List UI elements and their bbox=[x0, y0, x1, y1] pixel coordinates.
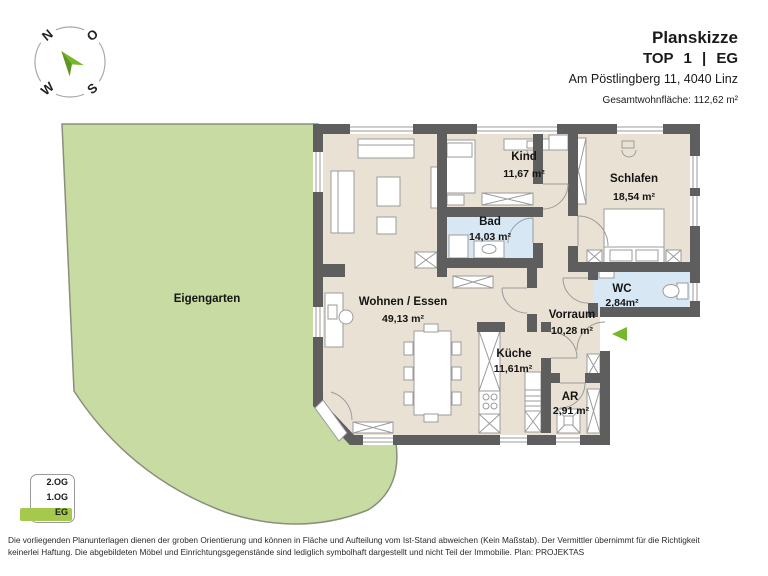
room-vorraum-name: Vorraum bbox=[549, 309, 595, 321]
room-kueche-area: 11,61m² bbox=[494, 363, 533, 375]
floor-option-1og[interactable]: 1.OG bbox=[31, 490, 74, 505]
floor-selector[interactable]: 2.OG 1.OG EG bbox=[30, 474, 75, 523]
room-wc-name: WC bbox=[612, 283, 631, 295]
room-wc-area: 2,84m² bbox=[605, 297, 639, 309]
floor-option-eg[interactable]: EG bbox=[31, 505, 74, 520]
disclaimer: Die vorliegenden Planunterlagen dienen d… bbox=[8, 534, 760, 558]
room-vorraum-area: 10,28 m² bbox=[551, 325, 594, 337]
floorplan-drawing: Eigengarten Kind 11,67 m² Schlafen 18,54… bbox=[0, 0, 768, 576]
room-kueche-name: Küche bbox=[496, 348, 531, 360]
floor-option-2og[interactable]: 2.OG bbox=[31, 475, 74, 490]
room-wohnen-name: Wohnen / Essen bbox=[359, 296, 448, 308]
room-schlafen-name: Schlafen bbox=[610, 173, 658, 185]
entrance-arrow-icon bbox=[612, 327, 627, 341]
room-bad-area: 14,03 m² bbox=[469, 231, 512, 243]
room-bad-name: Bad bbox=[479, 216, 501, 228]
room-wohnen-area: 49,13 m² bbox=[382, 313, 425, 325]
garden-label: Eigengarten bbox=[174, 293, 240, 305]
room-ar-area: 2,91 m² bbox=[553, 405, 590, 417]
room-ar-name: AR bbox=[562, 391, 579, 403]
room-kind-name: Kind bbox=[511, 151, 537, 163]
disclaimer-line-2: keinerlei Haftung. Die abgebildeten Möbe… bbox=[8, 546, 760, 558]
room-schlafen-area: 18,54 m² bbox=[613, 191, 656, 203]
room-kind-area: 11,67 m² bbox=[503, 168, 545, 180]
disclaimer-line-1: Die vorliegenden Planunterlagen dienen d… bbox=[8, 534, 760, 546]
floorplan-page: Planskizze TOP 1 | EG Am Pöstlingberg 11… bbox=[0, 0, 768, 576]
